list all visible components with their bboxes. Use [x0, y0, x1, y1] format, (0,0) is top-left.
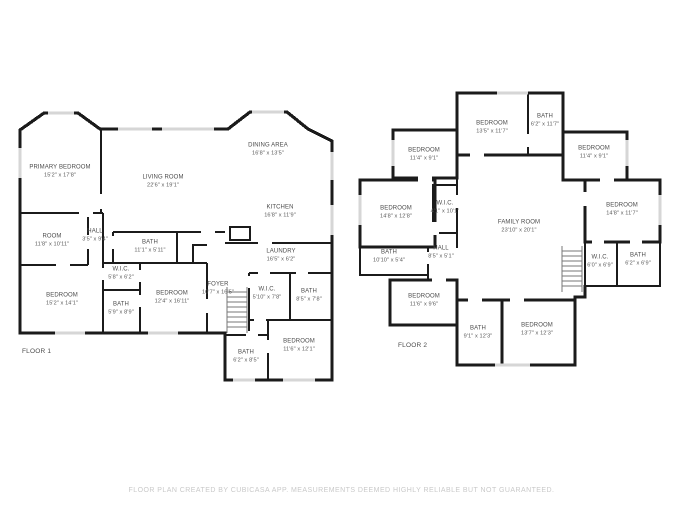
floor1-label: FLOOR 1: [22, 348, 51, 355]
stairs-floor2-icon: [562, 246, 582, 292]
floor1-walls: [20, 112, 332, 380]
kitchen-island: [230, 227, 250, 240]
floor2-door-openings: [418, 134, 642, 304]
floor2-walls: [360, 93, 660, 365]
floor-plan-drawing: [0, 0, 683, 512]
footer-disclaimer: FLOOR PLAN CREATED BY CUBICASA APP. MEAS…: [0, 487, 683, 494]
stairs-floor1-icon: [227, 287, 247, 333]
floor2-label: FLOOR 2: [398, 342, 427, 349]
floor-plan-canvas: PRIMARY BEDROOM15'2" x 17'8" LIVING ROOM…: [0, 0, 683, 512]
